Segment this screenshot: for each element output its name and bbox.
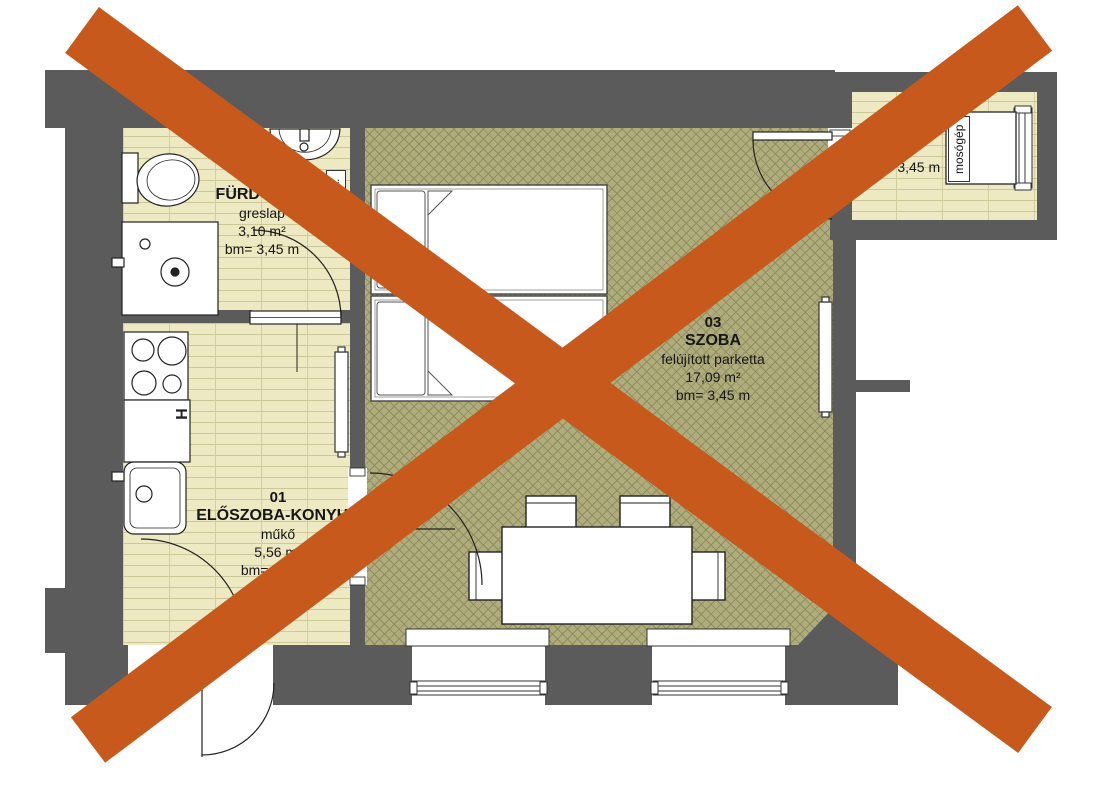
floor-plan-canvas: H: [0, 0, 1101, 788]
rejection-cross: [0, 0, 1101, 788]
